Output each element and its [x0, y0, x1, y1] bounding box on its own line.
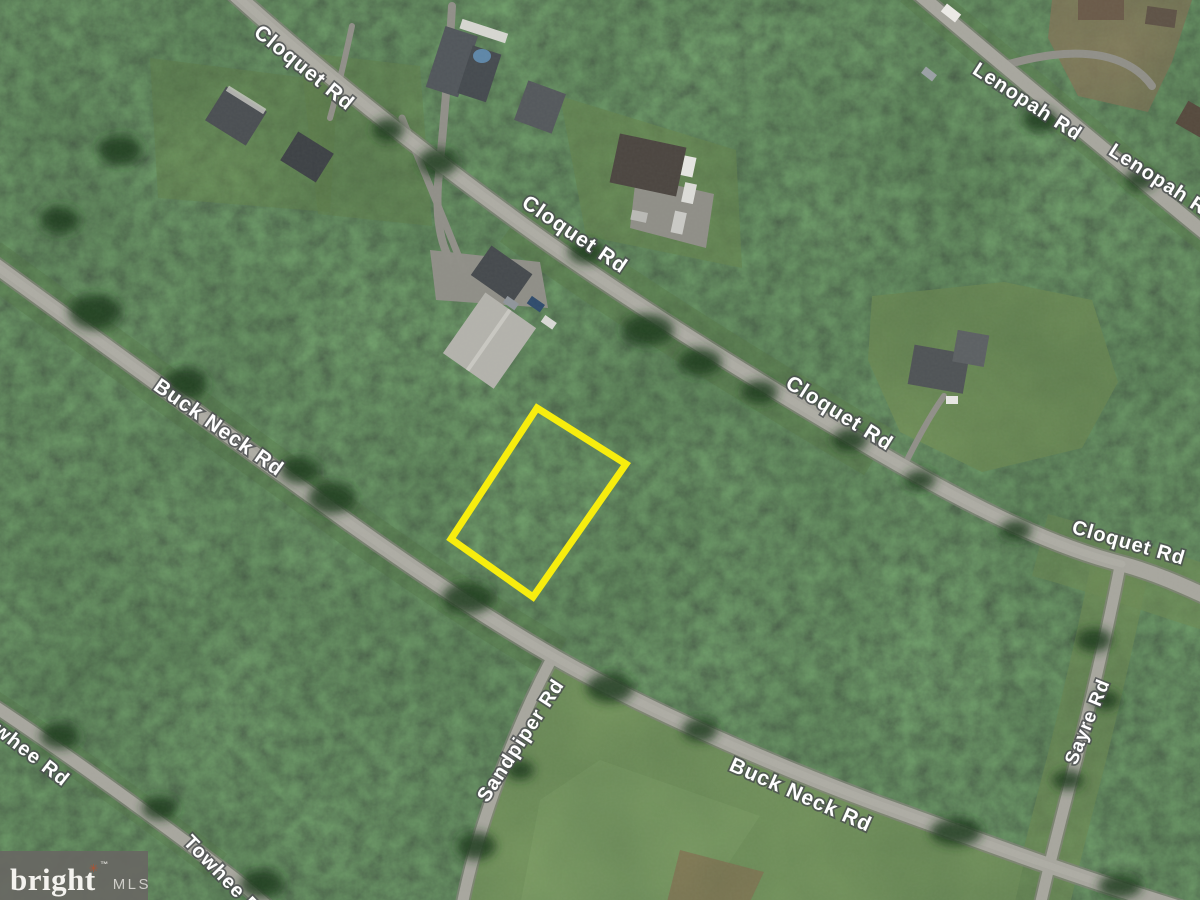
- trademark-symbol: ™: [100, 861, 109, 869]
- logo-spark-icon: ✳: [89, 863, 99, 874]
- satellite-map-image: Cloquet Rd Cloquet Rd Cloquet Rd Cloquet…: [0, 0, 1200, 900]
- map-canvas: Cloquet Rd Cloquet Rd Cloquet Rd Cloquet…: [0, 0, 1200, 900]
- brand-logo-text: bright✳™: [10, 867, 96, 893]
- watermark: bright✳™ MLS: [0, 851, 148, 900]
- mls-text: MLS: [113, 877, 151, 894]
